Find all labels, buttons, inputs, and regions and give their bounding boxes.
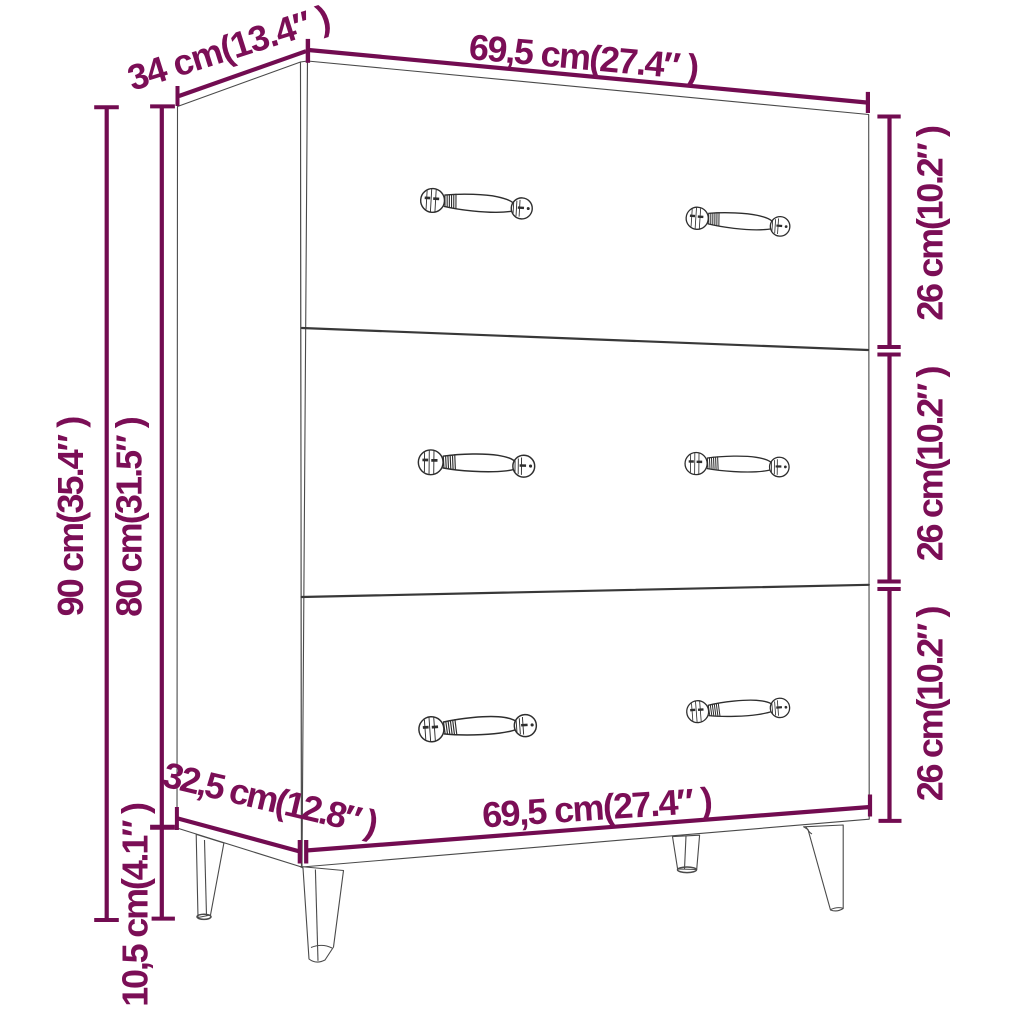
svg-text:90 cm(35.4″ ): 90 cm(35.4″ ) xyxy=(50,417,91,617)
svg-text:10,5 cm(4.1″ ): 10,5 cm(4.1″ ) xyxy=(115,803,156,1007)
svg-text:80 cm(31.5″ ): 80 cm(31.5″ ) xyxy=(109,417,150,617)
svg-text:26 cm(10.2″ ): 26 cm(10.2″ ) xyxy=(910,606,951,801)
svg-text:26 cm(10.2″ ): 26 cm(10.2″ ) xyxy=(910,126,951,321)
svg-text:26 cm(10.2″ ): 26 cm(10.2″ ) xyxy=(910,366,951,561)
